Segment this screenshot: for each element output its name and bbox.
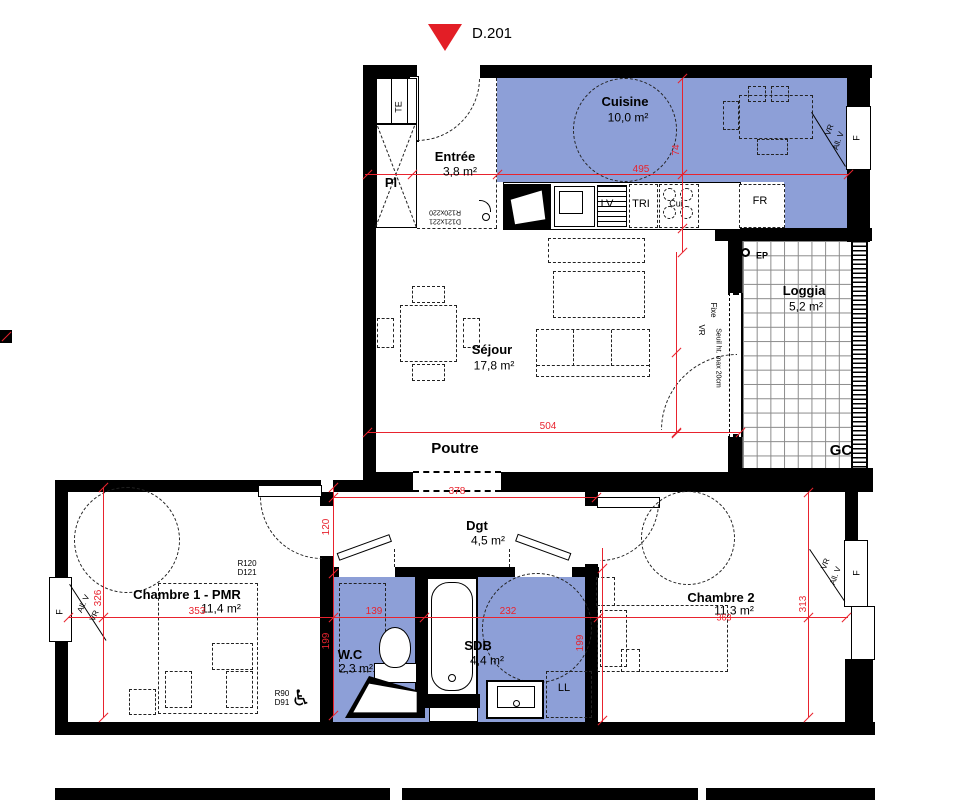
room-sdb: SDB <box>464 639 491 653</box>
wall <box>728 468 873 492</box>
entree-sejour-boundary <box>417 228 497 229</box>
sofa-divider <box>611 330 612 366</box>
pillow <box>226 671 253 708</box>
scale-bar <box>55 788 390 800</box>
icon-wheelchair: ♿ <box>291 686 311 709</box>
bedside-table <box>212 643 253 670</box>
wall <box>55 641 68 735</box>
win-f-ch2: F <box>852 570 861 576</box>
washbasin-tap-icon <box>513 700 520 707</box>
dining-chair <box>412 364 445 381</box>
kitchen-chair <box>748 86 766 102</box>
dimension-line <box>602 548 603 722</box>
dining-chair <box>412 286 445 303</box>
dim-326: 326 <box>94 590 105 607</box>
unit-number: D.201 <box>472 26 512 42</box>
room-entree: Entrée <box>435 150 475 164</box>
sofa-seat-line <box>537 365 649 366</box>
dimension-line <box>365 174 848 175</box>
toilet-bowl <box>379 627 411 668</box>
dim-495: 495 <box>633 165 650 176</box>
wall <box>728 241 742 295</box>
kitchen-chair <box>757 139 788 155</box>
entry-door-swing <box>417 78 480 141</box>
bay-fixe: Fixe <box>709 302 717 317</box>
wall <box>55 480 68 578</box>
label-pl: Pl <box>385 176 397 190</box>
label-fr: FR <box>753 196 768 208</box>
sofa-divider <box>573 330 574 366</box>
area-loggia: 5,2 m² <box>789 301 823 314</box>
label-lv: LV <box>601 199 614 211</box>
dim-74: 74 <box>672 144 683 155</box>
dim-120: 120 <box>322 519 333 536</box>
wc-door-leaf <box>337 534 392 561</box>
wall <box>55 722 875 735</box>
dimension-line <box>676 252 677 433</box>
door-stop-icon <box>482 213 490 221</box>
chambre1-door-leaf <box>258 485 322 497</box>
ep-drain-icon <box>741 248 750 257</box>
label-ep: EP <box>756 251 768 260</box>
te-divider <box>391 79 392 123</box>
shaft-box <box>851 606 875 660</box>
sdb-door-leaf <box>515 534 571 561</box>
area-chambre1: 11,4 m² <box>201 603 241 616</box>
scale-bar <box>402 788 698 800</box>
dim-363: 363 <box>716 613 731 622</box>
area-wc: 2,3 m² <box>339 663 373 676</box>
dim-199-wc: 199 <box>322 633 333 650</box>
bedside-table <box>129 689 156 715</box>
bay-vr: VR <box>697 324 705 335</box>
dim-504: 504 <box>540 422 557 433</box>
dimension-line <box>333 487 334 715</box>
sideboard <box>548 238 645 263</box>
zone-cuisine-fill-right <box>784 182 847 228</box>
area-dgt: 4,5 m² <box>471 535 505 548</box>
bathtub-step <box>429 707 478 722</box>
turning-circle-chambre1 <box>74 487 180 593</box>
spec-door-2: D121x221 <box>429 217 461 224</box>
bathtub-ledge <box>425 694 480 708</box>
area-cuisine: 10,0 m² <box>608 112 649 125</box>
room-chambre1: Chambre 1 - PMR <box>133 588 241 602</box>
wall <box>728 436 742 469</box>
scale-bar <box>706 788 875 800</box>
sideboard <box>553 271 645 318</box>
wall <box>480 65 872 78</box>
dining-table <box>400 305 457 362</box>
turning-circle-chambre2 <box>641 491 735 585</box>
wall <box>363 78 376 480</box>
wall <box>845 659 873 722</box>
wall <box>847 78 870 106</box>
sofa <box>536 329 650 377</box>
label-cui: Cui <box>669 199 683 208</box>
dim-139: 139 <box>366 607 383 618</box>
room-wc: W.C <box>338 648 363 662</box>
wardrobe <box>596 577 615 606</box>
bay-door-swing <box>661 354 737 430</box>
kitchen-chair <box>771 86 789 102</box>
loggia-tiles <box>742 241 851 468</box>
dining-chair <box>377 318 394 348</box>
win-f-ch1: F <box>55 609 64 615</box>
area-sdb: 4,4 m² <box>470 655 504 668</box>
wc-door-jamb-dash <box>394 549 395 567</box>
area-sejour: 17,8 m² <box>474 360 515 373</box>
spec-door-1: R120x220 <box>429 208 461 215</box>
chambre1-door-swing <box>260 497 322 559</box>
label-te: TE <box>394 101 403 113</box>
dim-353: 353 <box>189 607 206 618</box>
unit-marker-icon <box>428 24 462 51</box>
bedside-table <box>621 649 640 672</box>
kitchen-chair <box>723 101 739 130</box>
spec-d121: D121 <box>237 569 256 577</box>
dim-232: 232 <box>500 607 517 618</box>
label-poutre: Poutre <box>431 441 479 457</box>
room-sejour: Séjour <box>472 343 512 357</box>
bay-seuil: Seuil ht. max 20cm <box>714 328 721 388</box>
pillow <box>165 671 192 708</box>
te-divider <box>407 79 408 123</box>
dim-199-sdb: 199 <box>576 635 587 652</box>
entree-cuisine-boundary <box>496 78 497 228</box>
label-gc: GC <box>830 443 853 459</box>
bathtub-drain-icon <box>448 674 456 682</box>
dim-313: 313 <box>799 596 810 613</box>
win-vr-ch2: VR <box>820 557 832 570</box>
kitchen-sink-bowl <box>559 191 583 214</box>
door-stop-icon <box>479 200 491 212</box>
label-ll: LL <box>558 683 570 695</box>
label-tri: TRI <box>632 199 650 211</box>
bay-hinge <box>733 290 739 295</box>
area-entree: 3,8 m² <box>443 166 477 179</box>
dim-378: 378 <box>449 487 466 498</box>
win-f-kitchen: F <box>852 135 861 141</box>
room-cuisine: Cuisine <box>602 95 649 109</box>
sdb-door-jamb-dash <box>509 549 510 567</box>
wall <box>395 567 515 577</box>
wall <box>572 567 599 577</box>
wall <box>845 492 858 541</box>
room-loggia: Loggia <box>783 284 826 298</box>
floor-plan: D.201Cuisine10,0 m²Entrée3,8 m²Séjour17,… <box>0 0 961 800</box>
spec-d91: D91 <box>275 699 290 707</box>
room-dgt: Dgt <box>466 519 488 533</box>
loggia-guardrail <box>851 241 868 469</box>
win-allv-ch2: All. V <box>829 566 843 586</box>
